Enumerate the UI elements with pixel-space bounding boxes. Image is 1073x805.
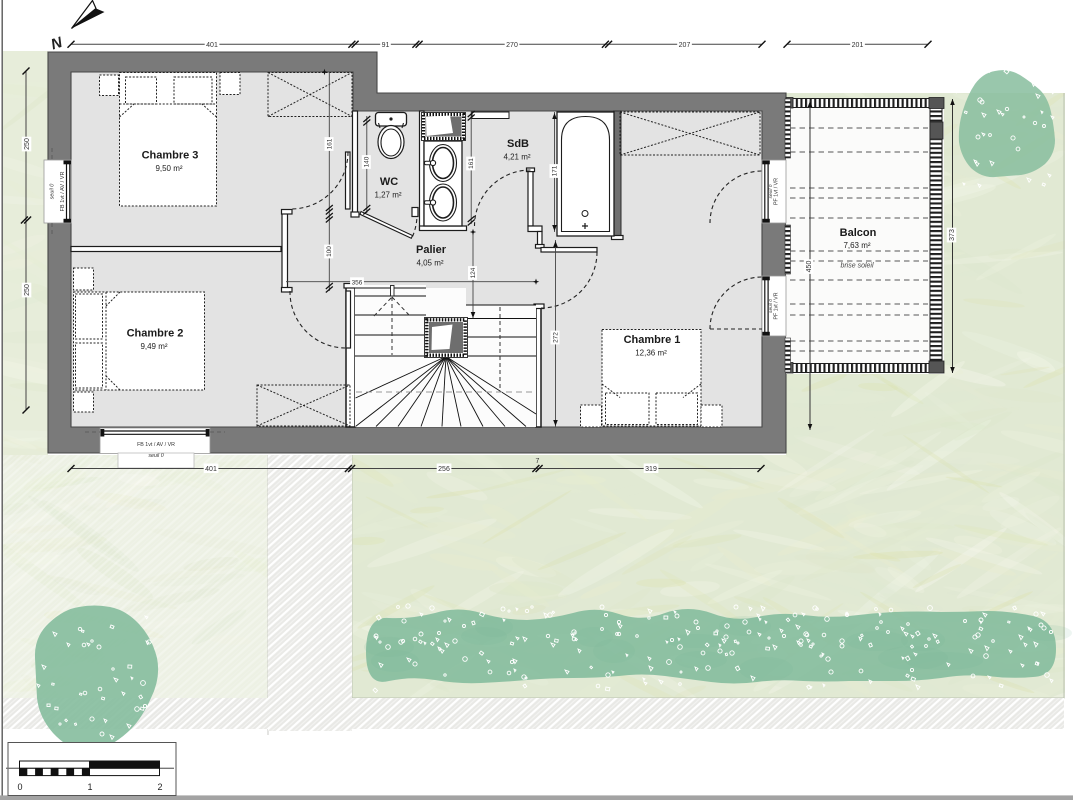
svg-text:256: 256 <box>438 466 450 473</box>
svg-text:seuil 0: seuil 0 <box>768 184 774 198</box>
svg-text:WC: WC <box>380 176 398 188</box>
svg-text:373: 373 <box>949 229 956 241</box>
svg-text:319: 319 <box>645 466 657 473</box>
svg-text:2: 2 <box>157 782 162 792</box>
svg-text:1,27 m²: 1,27 m² <box>374 191 401 200</box>
svg-text:161: 161 <box>468 158 475 169</box>
svg-text:201: 201 <box>852 42 864 49</box>
svg-text:12,36 m²: 12,36 m² <box>635 349 667 358</box>
svg-text:124: 124 <box>470 267 477 278</box>
svg-text:7,63 m²: 7,63 m² <box>843 241 870 250</box>
svg-text:401: 401 <box>206 42 218 49</box>
svg-text:0: 0 <box>17 782 22 792</box>
svg-text:4,21 m²: 4,21 m² <box>503 153 530 162</box>
svg-text:1: 1 <box>87 782 92 792</box>
svg-text:Palier: Palier <box>416 244 447 256</box>
svg-text:seuil 0: seuil 0 <box>148 453 163 459</box>
svg-text:401: 401 <box>205 466 217 473</box>
svg-text:250: 250 <box>24 284 31 296</box>
svg-text:Chambre 2: Chambre 2 <box>127 328 184 340</box>
svg-text:4,05 m²: 4,05 m² <box>416 259 443 268</box>
svg-text:7: 7 <box>536 458 540 465</box>
svg-text:450: 450 <box>806 261 813 273</box>
svg-text:PF 1vt / VR: PF 1vt / VR <box>774 178 780 205</box>
svg-text:140: 140 <box>364 156 371 167</box>
svg-text:356: 356 <box>352 279 363 286</box>
svg-text:9,49 m²: 9,49 m² <box>140 342 167 351</box>
svg-text:FB 1vt / AV / VR: FB 1vt / AV / VR <box>137 442 175 448</box>
svg-text:FB 1vt / AV / VR: FB 1vt / AV / VR <box>60 172 66 212</box>
svg-text:Chambre 3: Chambre 3 <box>142 150 199 162</box>
svg-text:brise soleil: brise soleil <box>840 263 874 270</box>
svg-text:100: 100 <box>326 246 333 257</box>
svg-text:Chambre 1: Chambre 1 <box>624 334 681 346</box>
svg-text:250: 250 <box>24 138 31 150</box>
svg-text:seuil 0: seuil 0 <box>50 184 56 200</box>
svg-text:Balcon: Balcon <box>840 227 877 239</box>
svg-text:270: 270 <box>506 42 518 49</box>
svg-text:9,50 m²: 9,50 m² <box>155 164 182 173</box>
svg-text:272: 272 <box>552 332 559 343</box>
svg-text:207: 207 <box>679 42 691 49</box>
svg-text:seuil 0: seuil 0 <box>768 299 774 313</box>
svg-text:161: 161 <box>326 138 333 149</box>
svg-text:SdB: SdB <box>507 138 529 150</box>
svg-text:PF 1vt / VR: PF 1vt / VR <box>774 292 780 319</box>
svg-text:91: 91 <box>382 42 390 49</box>
svg-text:171: 171 <box>551 165 558 176</box>
